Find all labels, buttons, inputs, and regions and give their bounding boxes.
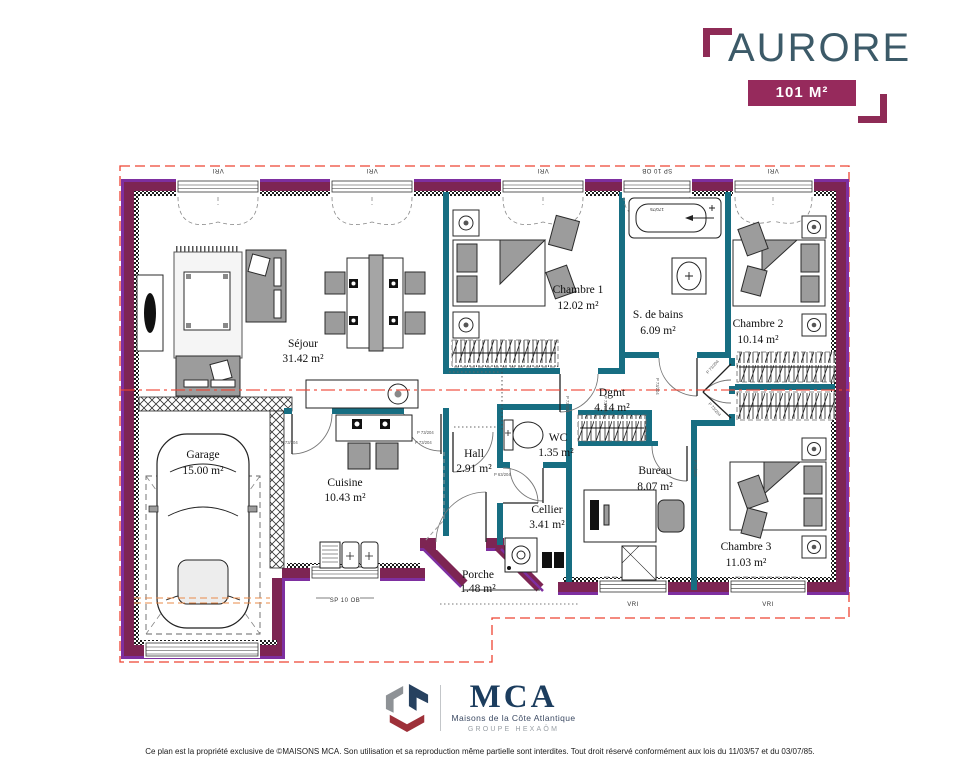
- room-cuisine-name: Cuisine: [327, 477, 362, 489]
- window-sejour-2: [330, 177, 414, 225]
- logo-group-name: GROUPE HEXAÔM: [468, 726, 559, 733]
- copyright-disclaimer: Ce plan est la propriété exclusive de ©M…: [0, 747, 960, 756]
- window-label: VRI: [767, 167, 779, 173]
- door-label: P 73/204: [415, 440, 432, 445]
- sejour-furniture: [137, 249, 425, 396]
- area-badge: 101 M²: [748, 80, 856, 106]
- door-label: P 73/204: [281, 440, 298, 445]
- door-label: P 73/204: [417, 430, 434, 435]
- room-bureau-area: 8.07 m²: [637, 481, 673, 493]
- brand-header: AURORE 101 M²: [690, 20, 900, 130]
- window-label: SP 10 OB: [330, 598, 361, 604]
- wc-fixtures: [504, 420, 543, 450]
- room-porche-name: Porche: [462, 569, 494, 581]
- logo-subtitle: Maisons de la Côte Atlantique: [451, 713, 575, 723]
- window-label: VRI: [212, 167, 224, 173]
- window-label: VRI: [627, 602, 639, 608]
- bureau-furniture: [584, 490, 684, 580]
- door-label: P 73/204: [603, 396, 608, 413]
- room-chambre3-name: Chambre 3: [721, 541, 772, 553]
- chambre3-furniture: [730, 438, 826, 558]
- room-chambre2-area: 10.14 m²: [737, 334, 779, 346]
- garage-car: [134, 434, 270, 634]
- logo-divider: [440, 685, 441, 731]
- room-sdb-area: 6.09 m²: [640, 325, 676, 337]
- window-cuisine: [310, 565, 380, 598]
- window-label: VRI: [762, 602, 774, 608]
- door-label: P 73/204: [693, 460, 698, 477]
- room-cellier-name: Cellier: [531, 504, 562, 516]
- room-hall-area: 2.91 m²: [456, 463, 492, 475]
- window-chambre3: [729, 577, 807, 597]
- room-cuisine-area: 10.43 m²: [324, 492, 366, 504]
- chambre1-furniture: [453, 210, 579, 338]
- room-sejour-area: 31.42 m²: [282, 353, 324, 365]
- room-sdb-name: S. de bains: [633, 309, 684, 321]
- room-chambre3-area: 11.03 m²: [726, 557, 767, 569]
- room-wc-name: WC: [549, 432, 568, 444]
- plan-sheet: Séjour 31.42 m² Chambre 1 12.02 m² S. de…: [0, 0, 960, 768]
- garage-door: [144, 641, 260, 658]
- model-title: AURORE: [728, 26, 888, 71]
- bathtub-size-label: 170/75: [650, 207, 664, 212]
- room-chambre2-name: Chambre 2: [733, 318, 784, 330]
- logo-acronym: MCA: [470, 682, 558, 712]
- cellier-appliances: [505, 538, 564, 572]
- room-dgmt-name: Dgmt: [599, 387, 626, 399]
- window-chambre1: [501, 177, 585, 225]
- room-sejour-name: Séjour: [288, 338, 318, 350]
- room-cellier-area: 3.41 m²: [529, 519, 565, 531]
- window-label: VRI: [366, 167, 378, 173]
- mca-logo: MCA Maisons de la Côte Atlantique GROUPE…: [0, 682, 960, 733]
- door-label: P 73/204: [565, 396, 570, 413]
- room-chambre1-area: 12.02 m²: [557, 300, 599, 312]
- door-label: P 73/204: [655, 378, 660, 395]
- room-hall-name: Hall: [464, 448, 484, 460]
- window-sejour-1: [176, 177, 260, 225]
- room-porche-area: 1.48 m²: [460, 583, 496, 595]
- tv-icon: [144, 293, 156, 333]
- bathroom-fixtures: [629, 198, 721, 294]
- room-dgmt-area: 4.14 m²: [594, 402, 630, 414]
- corner-bracket-bottom-right-icon: [858, 94, 887, 123]
- door-label: P 63/204: [494, 472, 511, 477]
- window-label: SP 10 OB: [642, 167, 673, 173]
- room-bureau-name: Bureau: [638, 465, 671, 477]
- room-garage-area: 15.00 m²: [182, 465, 224, 477]
- window-label: VRI: [537, 167, 549, 173]
- mca-hexagon-icon: [384, 683, 430, 733]
- room-garage-name: Garage: [186, 449, 219, 461]
- door-label: P 73/204: [705, 358, 720, 374]
- room-chambre1-name: Chambre 1: [553, 284, 604, 296]
- room-wc-area: 1.35 m²: [538, 447, 574, 459]
